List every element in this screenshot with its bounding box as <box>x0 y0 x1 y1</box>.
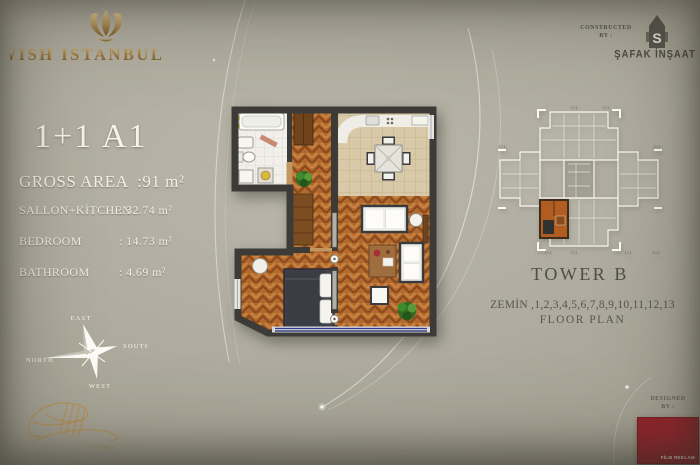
room-areas-list: SALLON+KİTCHEN : 32.74 m² BEDROOM : 14.7… <box>19 203 209 296</box>
room-row-bathroom: BATHROOM : 4.69 m² <box>19 265 209 280</box>
room-value: : 32.74 m² <box>119 203 172 218</box>
brand-name: WISH ISTANBUL <box>10 45 164 64</box>
signature: 15/10/2014 <box>16 392 134 462</box>
designed-by-label: DESIGNED BY : <box>640 395 696 411</box>
armchair <box>400 243 423 282</box>
room-value: : 14.73 m² <box>119 234 172 249</box>
designed-by-line1: DESIGNED <box>640 395 696 403</box>
compass-south-label: SOUTH <box>123 343 148 350</box>
constructed-by-label: CONSTRUCTED BY : <box>574 24 638 40</box>
designer-logo-text: FİLM REKLAM <box>661 455 695 460</box>
builder-logo-letter: S <box>652 30 661 46</box>
pouf <box>371 287 388 304</box>
side-table <box>410 214 423 227</box>
unit-title: 1+1 A1 <box>34 118 147 156</box>
key-unit-label: 1+1 <box>653 144 661 149</box>
room-row-bedroom: BEDROOM : 14.73 m² <box>19 234 209 249</box>
balcony-window-band <box>272 327 430 333</box>
compass-east-label: EAST <box>70 315 91 322</box>
key-unit-label: 1+1 <box>624 250 632 255</box>
apartment-floor-plan <box>228 93 450 339</box>
console <box>423 215 428 243</box>
designed-by-line2: BY : <box>640 403 696 411</box>
builder-tower-icon <box>649 15 665 26</box>
shower-tray <box>239 170 253 183</box>
key-unit-label: 1+1 <box>652 250 660 255</box>
kitchen-sink <box>366 116 379 125</box>
compass-west-label: WEST <box>89 383 112 390</box>
room-label: SALLON+KİTCHEN <box>19 203 119 218</box>
gross-area-value: :91 m² <box>137 172 184 191</box>
washbasin <box>238 137 253 148</box>
compass-north-label: NORTH <box>26 357 54 364</box>
key-unit-label: 1+1 <box>544 250 552 255</box>
signature-date: 15/10/2014 <box>86 445 116 451</box>
key-unit-label: 1+1 <box>570 105 578 110</box>
wardrobe <box>293 194 313 245</box>
builder-logo: S <box>643 12 671 52</box>
brochure-page: WISH ISTANBUL 1+1 A1 GROSS AREA :91 m² S… <box>0 0 700 465</box>
room-label: BATHROOM <box>19 265 119 280</box>
room-value: : 4.69 m² <box>119 265 166 280</box>
tower-plan-label: FLOOR PLAN <box>470 314 695 326</box>
designer-logo-box: FİLM REKLAM <box>637 417 699 464</box>
room-row-sallon-kitchen: SALLON+KİTCHEN : 32.74 m² <box>19 203 209 218</box>
highlighted-unit <box>540 200 568 238</box>
key-unit-label: 1+1 <box>570 250 578 255</box>
coffee-table <box>369 245 396 277</box>
bedside-table <box>253 259 268 274</box>
toilet <box>243 152 255 162</box>
room-label: BEDROOM <box>19 234 119 249</box>
builder-company-name: ŞAFAK İNŞAAT <box>610 48 700 61</box>
constructed-by-line1: CONSTRUCTED <box>574 24 638 32</box>
tower-name: TOWER B <box>480 264 680 285</box>
constructed-by-line2: BY : <box>574 32 638 40</box>
gross-area-row: GROSS AREA :91 m² <box>19 172 185 192</box>
compass-rose: EAST SOUTH NORTH WEST <box>24 310 148 394</box>
tulip-icon <box>90 10 122 42</box>
plant <box>296 171 312 187</box>
tower-floors-line: ZEMİN ,1,2,3,4,5,6,7,8,9,10,11,12,13 <box>470 299 695 311</box>
gross-area-label: GROSS AREA <box>19 172 127 191</box>
brand-logo: WISH ISTANBUL <box>10 4 180 68</box>
tower-key-plan: 1+1 1+1 1+1 1+1 1+1 1+1 1+1 1+1 <box>494 104 666 256</box>
key-unit-label: 1+1 <box>498 144 506 149</box>
key-unit-label: 1+1 <box>602 105 610 110</box>
sofa <box>362 206 407 232</box>
bed <box>284 269 334 327</box>
